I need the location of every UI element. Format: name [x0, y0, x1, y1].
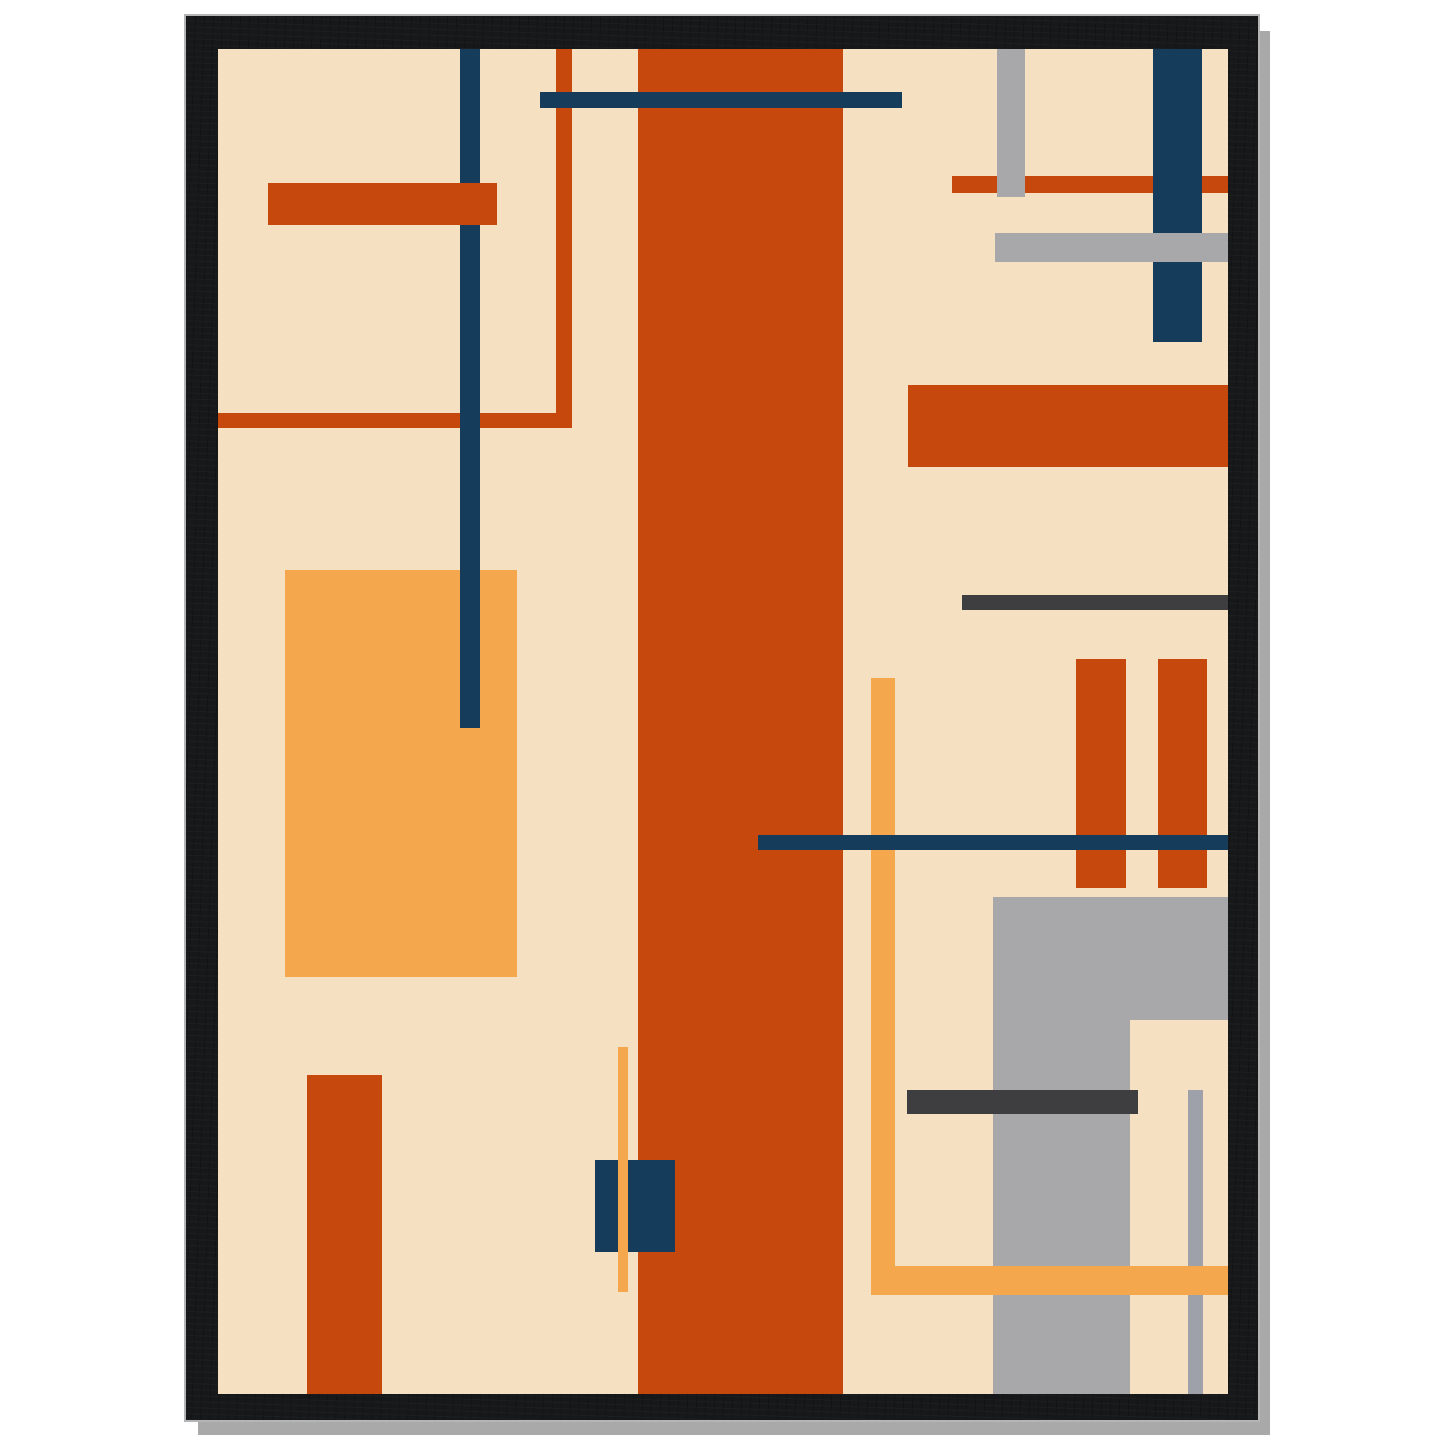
gray-bar-top-right-horizontal	[995, 233, 1228, 262]
amber-bar-bottom-right-horizontal	[871, 1266, 1228, 1295]
amber-line-bottom-center	[618, 1047, 628, 1292]
rust-bar-right-pair-1	[1076, 659, 1126, 888]
navy-bar-top-right-vertical	[1153, 49, 1202, 342]
rust-rect-bottom-left	[307, 1075, 382, 1394]
abstract-artwork	[218, 49, 1228, 1394]
cream-notch-bottom-right	[1130, 1020, 1228, 1394]
darkgray-line-right	[962, 595, 1228, 610]
navy-bar-top	[540, 92, 902, 108]
rust-bar-top-left	[268, 183, 497, 225]
rust-bar-right-pair-2	[1158, 659, 1207, 888]
gray-line-bottom-right-vertical	[1188, 1090, 1203, 1394]
navy-square-bottom-center	[595, 1160, 675, 1252]
darkgray-bar-bottom-right	[907, 1090, 1138, 1114]
poster-frame	[186, 16, 1258, 1420]
rust-line-left-horizontal	[218, 413, 572, 428]
navy-line-right-horizontal	[758, 835, 1228, 850]
amber-line-right-vertical	[871, 678, 895, 1295]
gray-bar-top-right-vertical	[997, 49, 1025, 197]
product-photo	[0, 0, 1445, 1445]
navy-line-left-vertical	[460, 49, 480, 728]
rust-bar-right	[908, 385, 1228, 467]
amber-rect-left	[285, 570, 517, 977]
